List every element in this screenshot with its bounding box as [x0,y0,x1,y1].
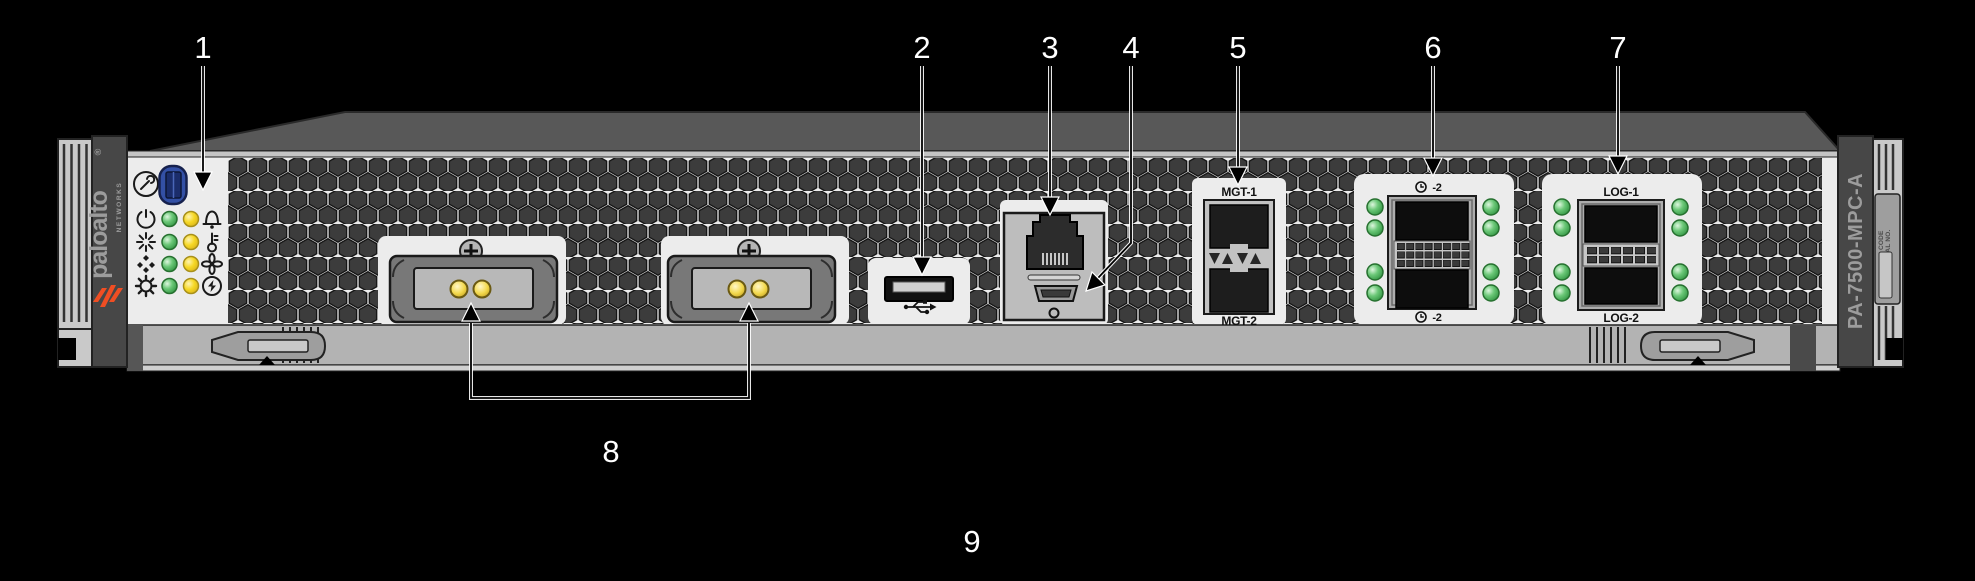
cage-vent-grid [1587,247,1656,264]
svg-text:-2: -2 [1432,312,1441,324]
mgt2-latch [1230,267,1248,272]
callout-number-4: 4 [1122,30,1139,65]
callout-number-7: 7 [1609,30,1626,65]
data-led-green [162,257,177,272]
status-slot [1028,275,1080,280]
ssd-led-1 [451,281,468,298]
clock-icon [1416,182,1426,192]
cage-vent-grid [1397,243,1470,268]
bracket-notch-left [58,338,76,360]
log1-qsfp-port[interactable] [1585,206,1657,242]
rail-end-block-left [127,325,143,371]
clock-qsfp-port-top[interactable] [1396,202,1468,240]
slot-status-icon [160,166,187,204]
mgt1-latch [1230,244,1248,249]
card-bracket-right: CLEI CODE SERIAL NO. [1873,139,1903,367]
data-led-yellow [184,257,199,272]
log2-label: LOG-2 [1603,311,1639,325]
callout-number-6: 6 [1424,30,1441,65]
callout-number-1: 1 [194,30,211,65]
log1-label: LOG-1 [1603,185,1639,199]
power-led-yellow [184,212,199,227]
status-led-green [162,235,177,250]
ssd-led-1 [729,281,746,298]
pa-7500-mpc-a-front-panel-diagram: paloalto ® NETWORKS PA-7500-MPC-A CLEI C… [0,0,1975,581]
ssd-led-2 [474,281,491,298]
callout-number-5: 5 [1229,30,1246,65]
console-panel [1004,213,1104,320]
chassis: paloalto ® NETWORKS PA-7500-MPC-A CLEI C… [58,112,1903,371]
micro-usb-console-port[interactable] [1035,286,1077,301]
log2-qsfp-port[interactable] [1585,268,1657,304]
top-cover [150,112,1840,151]
brand-sub-text: NETWORKS [116,182,123,233]
mgt2-label: MGT-2 [1221,314,1257,328]
brand-registered-mark: ® [93,148,103,155]
bottom-rail [127,325,1840,365]
ejector-handle-left[interactable] [212,332,325,360]
model-strip: PA-7500-MPC-A [1838,136,1873,367]
system-led-green [162,279,177,294]
rail-end-block-right [1790,325,1816,371]
bottom-edge-strip [127,365,1840,371]
callout-number-8: 8 [602,434,619,469]
model-label: PA-7500-MPC-A [1845,173,1867,329]
brand-logo-text: paloalto [85,190,113,279]
clock-icon [1416,312,1426,322]
svg-text:-2: -2 [1432,182,1441,194]
rj45-console-port[interactable] [1027,215,1083,269]
usb-port[interactable] [885,277,953,301]
brand-strip: paloalto ® NETWORKS [85,136,127,367]
ejector-handle-right[interactable] [1641,332,1754,360]
serial-blank-field [1879,252,1892,298]
status-led-yellow [184,235,199,250]
power-led-green [162,212,177,227]
reset-pinhole[interactable] [1050,309,1059,318]
hardware-diagram: paloalto ® NETWORKS PA-7500-MPC-A CLEI C… [0,0,1975,581]
bracket-notch-right [1886,338,1903,360]
callout-number-2: 2 [913,30,930,65]
mgt2-sfp-port[interactable] [1210,269,1268,312]
callout-number-3: 3 [1041,30,1058,65]
ssd-led-2 [752,281,769,298]
callout-number-9: 9 [963,524,980,559]
mgt1-label: MGT-1 [1221,185,1257,199]
clock-qsfp-port-bottom[interactable] [1396,270,1468,308]
mgt1-sfp-port[interactable] [1210,205,1268,248]
system-led-yellow [184,279,199,294]
mgt-port-block: MGT-1 MGT-2 [1204,185,1274,328]
